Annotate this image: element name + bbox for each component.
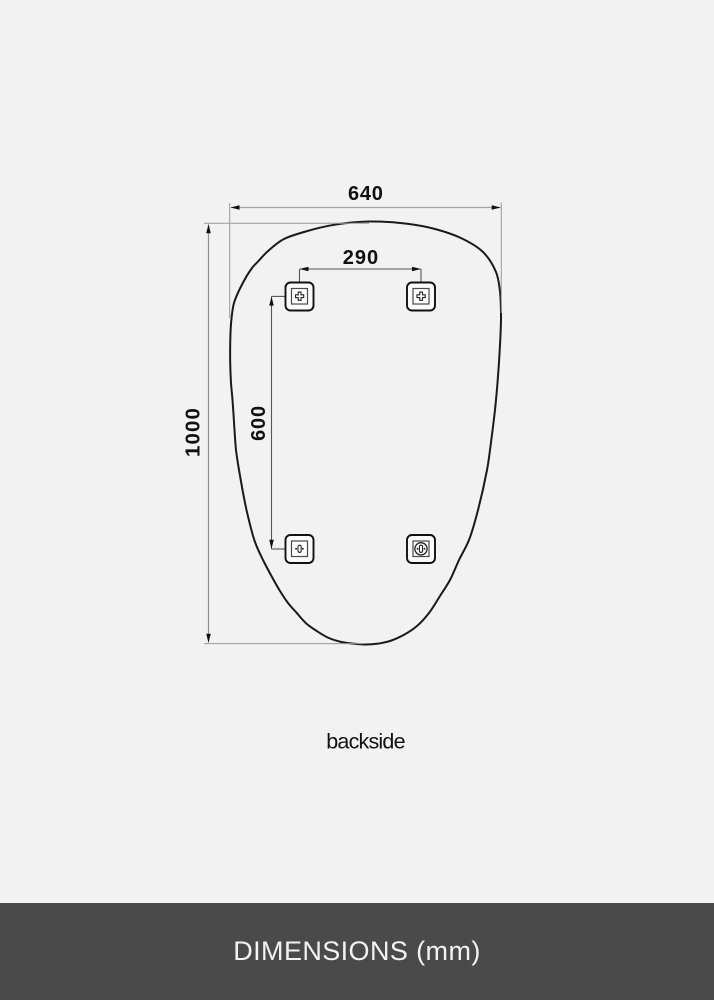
svg-text:1000: 1000 <box>182 407 205 457</box>
svg-text:290: 290 <box>343 247 379 269</box>
svg-text:600: 600 <box>248 405 270 441</box>
svg-text:640: 640 <box>348 183 383 205</box>
svg-text:backside: backside <box>326 730 404 754</box>
